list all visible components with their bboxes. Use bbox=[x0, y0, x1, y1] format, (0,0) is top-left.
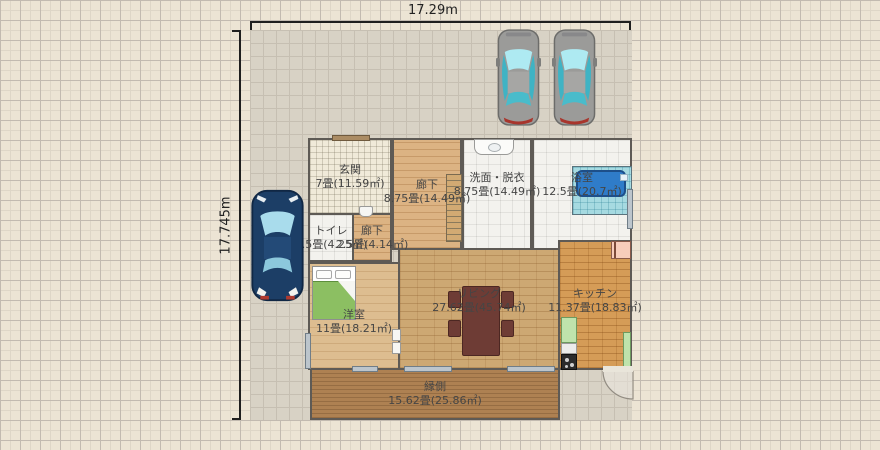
room-name: 洗面・脱衣 bbox=[454, 171, 541, 185]
bath-unit[interactable] bbox=[572, 166, 632, 215]
dimension-line-vertical bbox=[239, 30, 241, 420]
hinged-door[interactable] bbox=[611, 241, 631, 259]
bed-fold bbox=[338, 281, 355, 301]
blue-car-icon[interactable] bbox=[249, 189, 306, 302]
kitchen-counter[interactable] bbox=[561, 343, 577, 354]
window[interactable] bbox=[305, 333, 311, 369]
door-swing-arc bbox=[602, 371, 634, 401]
room-size: 15.62畳(25.86㎡) bbox=[388, 394, 482, 408]
pillow bbox=[316, 270, 332, 279]
chair[interactable] bbox=[448, 320, 461, 337]
dimension-tick bbox=[250, 21, 252, 30]
gray-car-icon[interactable] bbox=[496, 28, 541, 127]
dimension-tick bbox=[629, 21, 631, 30]
staircase[interactable] bbox=[446, 174, 462, 242]
dimension-tick bbox=[232, 418, 241, 420]
bathtub bbox=[576, 170, 626, 197]
floorplan-canvas: 17.29m 17.745m 玄関7畳(11.59㎡) 廊下8.75畳(14.4… bbox=[0, 0, 880, 450]
chair[interactable] bbox=[448, 291, 461, 308]
room-toilet[interactable]: トイレ2.5畳(4.25㎡) bbox=[308, 213, 354, 262]
pillow bbox=[335, 270, 351, 279]
entrance-door[interactable] bbox=[332, 135, 370, 141]
room-name: 玄関 bbox=[315, 163, 384, 177]
dining-table[interactable] bbox=[462, 286, 500, 356]
stove[interactable] bbox=[561, 354, 577, 370]
chair[interactable] bbox=[501, 291, 514, 308]
width-dimension-label: 17.29m bbox=[408, 3, 458, 18]
door-opening bbox=[603, 366, 633, 372]
shelf[interactable] bbox=[392, 342, 401, 354]
window[interactable] bbox=[627, 189, 633, 229]
height-dimension-label: 17.745m bbox=[219, 196, 234, 256]
dimension-line-horizontal bbox=[250, 21, 631, 23]
room-name: キッチン bbox=[548, 287, 642, 301]
room-size: 7畳(11.59㎡) bbox=[315, 177, 384, 191]
kitchen-cabinet[interactable] bbox=[561, 317, 577, 343]
basin bbox=[488, 143, 501, 152]
shelf[interactable] bbox=[392, 329, 401, 341]
room-genkan[interactable]: 玄関7畳(11.59㎡) bbox=[308, 138, 392, 215]
room-size: 8.75畳(14.49㎡) bbox=[454, 185, 541, 199]
room-size: 11畳(18.21㎡) bbox=[316, 322, 392, 336]
gray-car-icon[interactable] bbox=[552, 28, 597, 127]
washbasin[interactable] bbox=[474, 139, 514, 155]
bed[interactable] bbox=[312, 266, 356, 320]
room-veranda[interactable]: 縁側15.62畳(25.86㎡) bbox=[310, 368, 560, 420]
dimension-tick bbox=[232, 30, 241, 32]
bath-tray bbox=[620, 174, 628, 181]
window[interactable] bbox=[404, 366, 452, 372]
chair[interactable] bbox=[501, 320, 514, 337]
room-name: 縁側 bbox=[388, 380, 482, 394]
room-hallway-small[interactable]: 廊下2.5畳(4.14㎡) bbox=[352, 213, 392, 262]
window[interactable] bbox=[507, 366, 555, 372]
kitchen-cabinet[interactable] bbox=[623, 332, 631, 370]
window[interactable] bbox=[352, 366, 378, 372]
room-size: 11.37畳(18.83㎡) bbox=[548, 301, 642, 315]
toilet-fixture[interactable] bbox=[359, 206, 373, 217]
